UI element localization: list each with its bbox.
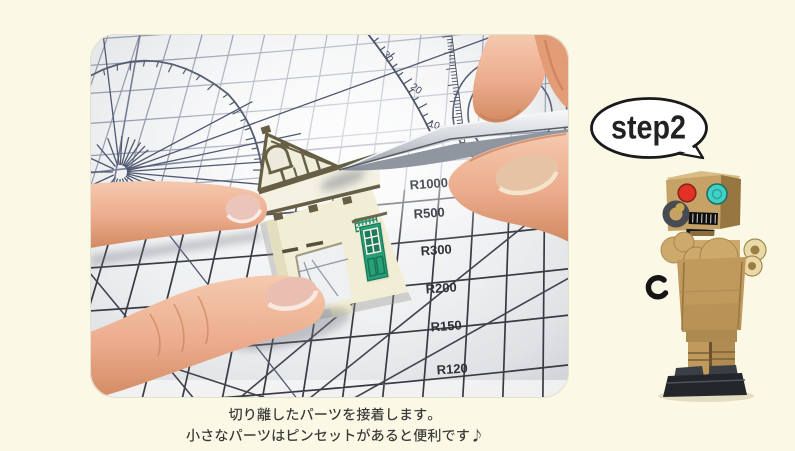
svg-text:R120: R120 <box>436 360 468 377</box>
svg-text:R500: R500 <box>413 204 445 221</box>
svg-text:R150: R150 <box>430 317 462 334</box>
svg-text:step2: step2 <box>611 109 686 146</box>
svg-text:R1000: R1000 <box>409 175 448 193</box>
svg-text:R300: R300 <box>420 241 452 258</box>
svg-text:R200: R200 <box>425 279 457 296</box>
